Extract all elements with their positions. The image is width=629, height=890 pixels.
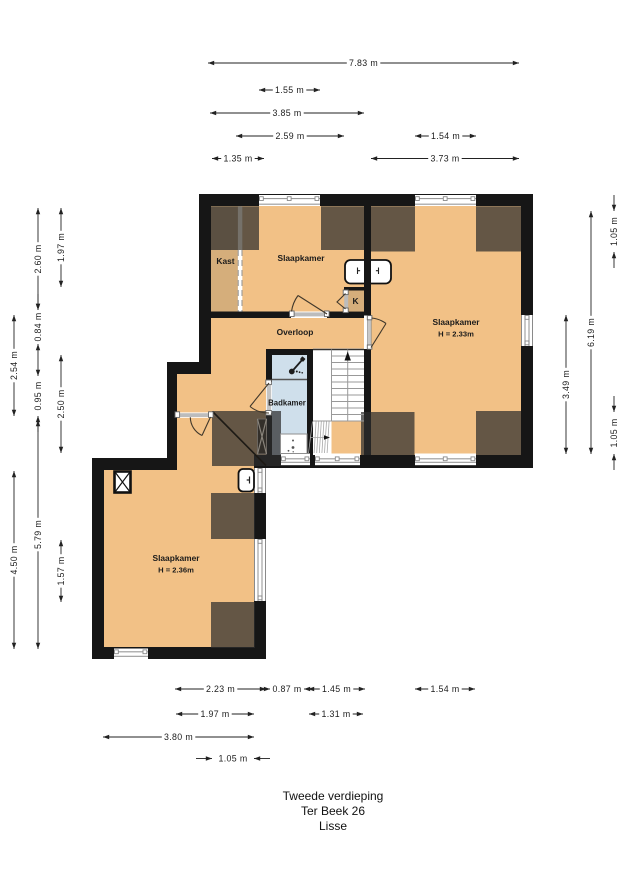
svg-text:2.50 m: 2.50 m — [56, 390, 66, 419]
svg-text:Slaapkamer: Slaapkamer — [432, 317, 480, 327]
svg-text:4.50 m: 4.50 m — [9, 546, 19, 575]
svg-text:0.95 m: 0.95 m — [33, 382, 43, 411]
svg-text:1.54 m: 1.54 m — [431, 131, 460, 141]
svg-text:6.19 m: 6.19 m — [586, 318, 596, 347]
svg-text:2.54 m: 2.54 m — [9, 351, 19, 380]
svg-text:3.73 m: 3.73 m — [431, 154, 460, 164]
svg-text:Kast: Kast — [216, 256, 234, 266]
svg-text:1.97 m: 1.97 m — [201, 709, 230, 719]
svg-text:1.45 m: 1.45 m — [322, 684, 351, 694]
svg-text:1.05 m: 1.05 m — [609, 419, 619, 448]
svg-text:2.23 m: 2.23 m — [206, 684, 235, 694]
svg-text:0.87 m: 0.87 m — [273, 684, 302, 694]
svg-text:1.54 m: 1.54 m — [431, 684, 460, 694]
svg-text:7.83 m: 7.83 m — [349, 58, 378, 68]
svg-text:3.80 m: 3.80 m — [164, 732, 193, 742]
svg-text:1.31 m: 1.31 m — [322, 709, 351, 719]
svg-text:Slaapkamer: Slaapkamer — [152, 553, 200, 563]
svg-text:2.60 m: 2.60 m — [33, 245, 43, 274]
svg-text:5.79 m: 5.79 m — [33, 520, 43, 549]
svg-text:1.05 m: 1.05 m — [219, 754, 248, 764]
svg-text:Ter Beek 26: Ter Beek 26 — [301, 804, 365, 818]
svg-text:H = 2.33m: H = 2.33m — [438, 330, 474, 339]
svg-text:1.05 m: 1.05 m — [609, 217, 619, 246]
svg-text:1.55 m: 1.55 m — [275, 85, 304, 95]
svg-text:3.85 m: 3.85 m — [273, 108, 302, 118]
svg-text:Lisse: Lisse — [319, 819, 347, 833]
svg-text:1.57 m: 1.57 m — [56, 557, 66, 586]
svg-text:Badkamer: Badkamer — [268, 399, 306, 408]
svg-text:0.84 m: 0.84 m — [33, 313, 43, 342]
svg-text:Overloop: Overloop — [277, 327, 314, 337]
svg-text:Slaapkamer: Slaapkamer — [277, 253, 325, 263]
svg-text:2.59 m: 2.59 m — [276, 131, 305, 141]
svg-text:1.97 m: 1.97 m — [56, 233, 66, 262]
svg-text:H = 2.36m: H = 2.36m — [158, 566, 194, 575]
svg-text:3.49 m: 3.49 m — [561, 370, 571, 399]
svg-text:K: K — [352, 296, 358, 306]
svg-text:1.35 m: 1.35 m — [224, 154, 253, 164]
svg-text:Tweede verdieping: Tweede verdieping — [283, 789, 384, 803]
